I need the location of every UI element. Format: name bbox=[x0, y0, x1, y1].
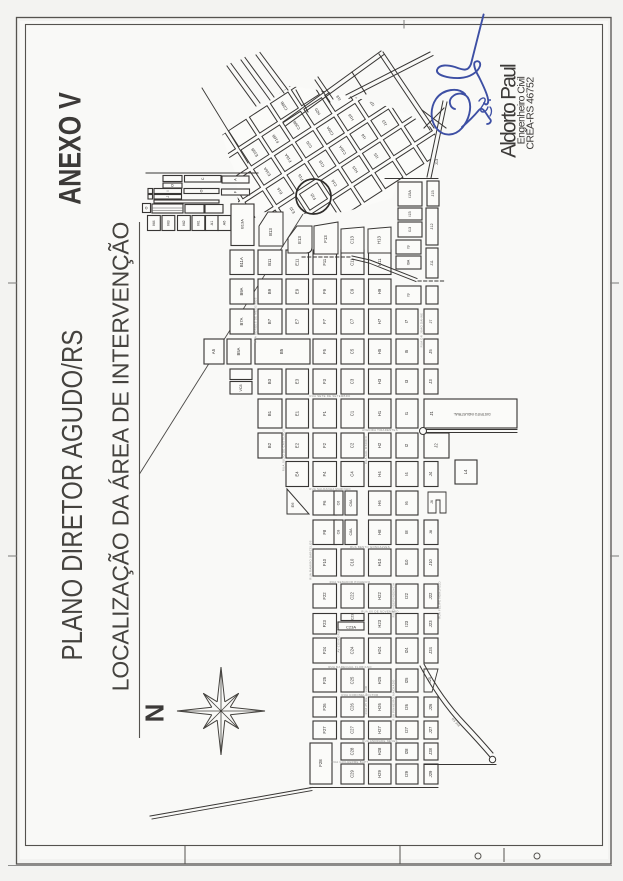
svg-text:H13: H13 bbox=[377, 235, 382, 243]
svg-text:RUA SALDANHA MARINHO: RUA SALDANHA MARINHO bbox=[309, 487, 351, 491]
svg-text:J11: J11 bbox=[430, 260, 434, 266]
svg-text:H23: H23 bbox=[377, 619, 382, 627]
svg-text:RUA BORGES DE MEDEIROS: RUA BORGES DE MEDEIROS bbox=[254, 297, 258, 342]
svg-text:I25: I25 bbox=[404, 677, 409, 683]
svg-text:H6: H6 bbox=[377, 500, 382, 506]
svg-text:VC8: VC8 bbox=[239, 385, 243, 392]
svg-text:RUA GAL OSORIO: RUA GAL OSORIO bbox=[364, 435, 368, 464]
svg-text:M2: M2 bbox=[182, 220, 186, 225]
svg-text:J12: J12 bbox=[430, 223, 434, 229]
svg-text:I15A: I15A bbox=[408, 190, 412, 198]
svg-text:RUA GUILHERME BAPT: RUA GUILHERME BAPT bbox=[332, 760, 369, 764]
svg-text:DISTRITO INDUSTRIAL: DISTRITO INDUSTRIAL bbox=[453, 412, 490, 416]
svg-text:C8A: C8A bbox=[349, 528, 353, 536]
svg-text:C8: C8 bbox=[336, 530, 340, 535]
svg-text:O: O bbox=[144, 206, 148, 209]
svg-text:B9: B9 bbox=[267, 288, 272, 294]
svg-text:RUA ANDRADE NEVES: RUA ANDRADE NEVES bbox=[362, 739, 397, 743]
svg-text:J6: J6 bbox=[430, 500, 434, 504]
svg-text:C29: C29 bbox=[350, 769, 355, 777]
svg-text:RUA SENADOR PINHEIRO: RUA SENADOR PINHEIRO bbox=[330, 580, 371, 584]
svg-text:H8: H8 bbox=[377, 529, 382, 535]
svg-text:M4: M4 bbox=[152, 220, 156, 225]
svg-text:E2: E2 bbox=[294, 442, 299, 448]
svg-text:C23A: C23A bbox=[346, 625, 356, 630]
svg-text:A5: A5 bbox=[211, 348, 216, 354]
svg-text:E7: E7 bbox=[294, 318, 299, 324]
svg-text:C23: C23 bbox=[350, 614, 354, 620]
svg-text:RUA 25 DE JULHO: RUA 25 DE JULHO bbox=[364, 685, 368, 714]
svg-text:C13: C13 bbox=[350, 235, 355, 243]
svg-text:F1: F1 bbox=[322, 410, 327, 416]
svg-text:C: C bbox=[201, 177, 205, 180]
svg-text:E11: E11 bbox=[294, 258, 299, 266]
svg-text:F27: F27 bbox=[322, 726, 327, 734]
svg-text:I23: I23 bbox=[404, 620, 409, 626]
svg-text:AV CONCORDIA: AV CONCORDIA bbox=[337, 628, 341, 653]
svg-text:J27: J27 bbox=[428, 726, 433, 733]
svg-text:J2: J2 bbox=[434, 443, 439, 448]
svg-text:F25: F25 bbox=[322, 676, 327, 684]
svg-text:B11: B11 bbox=[267, 258, 272, 266]
svg-text:E4: E4 bbox=[294, 471, 299, 477]
svg-text:B5A: B5A bbox=[236, 347, 241, 355]
svg-text:J29: J29 bbox=[428, 770, 433, 777]
svg-text:F4: F4 bbox=[322, 471, 327, 477]
svg-text:C10: C10 bbox=[350, 558, 355, 566]
svg-text:J3: J3 bbox=[428, 379, 433, 384]
svg-text:I22: I22 bbox=[404, 592, 409, 598]
svg-text:B7A: B7A bbox=[239, 317, 244, 325]
svg-text:C24: C24 bbox=[350, 646, 355, 654]
svg-text:B3: B3 bbox=[267, 378, 272, 384]
svg-text:I9A: I9A bbox=[407, 259, 411, 265]
svg-text:A6: A6 bbox=[222, 221, 226, 226]
svg-text:J7: J7 bbox=[429, 319, 433, 323]
svg-text:RUA RAMIRO BARCELOS: RUA RAMIRO BARCELOS bbox=[309, 540, 313, 579]
svg-text:I: I bbox=[166, 191, 170, 192]
svg-text:I24: I24 bbox=[404, 647, 409, 653]
svg-text:I28: I28 bbox=[404, 748, 409, 754]
svg-text:F5: F5 bbox=[322, 348, 327, 354]
svg-text:RUA MARECHAL FLORIANO: RUA MARECHAL FLORIANO bbox=[328, 665, 372, 669]
svg-text:C28: C28 bbox=[350, 747, 355, 755]
svg-text:I15: I15 bbox=[408, 211, 412, 216]
svg-text:CREA-RS 46752: CREA-RS 46752 bbox=[525, 77, 537, 150]
svg-text:L4: L4 bbox=[463, 469, 468, 474]
svg-text:F26: F26 bbox=[322, 703, 327, 711]
svg-text:ANEXO V: ANEXO V bbox=[53, 92, 89, 204]
svg-text:B13A: B13A bbox=[240, 219, 245, 229]
svg-text:I27: I27 bbox=[404, 726, 409, 732]
svg-text:E3: E3 bbox=[294, 378, 299, 384]
svg-text:F3: F3 bbox=[322, 378, 327, 384]
svg-text:H3: H3 bbox=[377, 378, 382, 384]
svg-text:RUA XV DE NOVEMBRO: RUA XV DE NOVEMBRO bbox=[361, 610, 399, 614]
svg-text:B7: B7 bbox=[267, 318, 272, 324]
svg-text:F2: F2 bbox=[322, 442, 327, 448]
svg-text:I13: I13 bbox=[408, 227, 412, 232]
svg-text:I26: I26 bbox=[404, 703, 409, 709]
svg-text:J23: J23 bbox=[428, 620, 433, 627]
svg-text:C3: C3 bbox=[350, 378, 355, 384]
svg-text:AVENIDA TIRADENTES: AVENIDA TIRADENTES bbox=[362, 428, 398, 432]
svg-text:E9: E9 bbox=[294, 288, 299, 294]
svg-text:C6A: C6A bbox=[349, 499, 353, 507]
svg-text:H1: H1 bbox=[377, 410, 382, 416]
svg-text:B1: B1 bbox=[267, 410, 272, 416]
svg-text:F6: F6 bbox=[322, 500, 327, 506]
svg-text:H28: H28 bbox=[377, 747, 382, 755]
svg-text:F10: F10 bbox=[322, 558, 327, 566]
svg-text:J26: J26 bbox=[428, 703, 433, 710]
svg-text:J4: J4 bbox=[428, 471, 433, 476]
svg-text:B13: B13 bbox=[268, 228, 273, 236]
svg-text:RUA DR JOAO DAHNE: RUA DR JOAO DAHNE bbox=[420, 313, 424, 348]
svg-text:J1: J1 bbox=[429, 411, 434, 416]
svg-text:E13: E13 bbox=[297, 236, 302, 244]
svg-text:F13: F13 bbox=[323, 235, 328, 243]
svg-text:B11A: B11A bbox=[239, 257, 244, 267]
svg-text:O: O bbox=[199, 189, 203, 192]
svg-text:C1: C1 bbox=[350, 410, 355, 416]
svg-text:RUA BENTO GONCALVES: RUA BENTO GONCALVES bbox=[350, 545, 390, 549]
svg-text:J22: J22 bbox=[428, 592, 433, 599]
svg-text:C4: C4 bbox=[350, 471, 355, 477]
svg-text:J15: J15 bbox=[431, 190, 435, 196]
svg-text:J: J bbox=[166, 196, 170, 198]
svg-text:J24: J24 bbox=[428, 646, 433, 653]
svg-text:F24: F24 bbox=[322, 646, 327, 654]
svg-text:RUA PINHEIRO MACHADO: RUA PINHEIRO MACHADO bbox=[392, 679, 396, 721]
svg-text:C7: C7 bbox=[350, 318, 355, 324]
svg-text:H9: H9 bbox=[377, 288, 382, 294]
svg-text:RUA JULIO DE CASTILHOS: RUA JULIO DE CASTILHOS bbox=[282, 429, 286, 471]
svg-text:O: O bbox=[170, 184, 174, 187]
svg-text:I9: I9 bbox=[407, 293, 411, 296]
svg-text:C5: C5 bbox=[350, 348, 355, 354]
svg-text:H26: H26 bbox=[377, 702, 382, 710]
svg-text:C2: C2 bbox=[350, 442, 355, 448]
svg-text:E1: E1 bbox=[294, 410, 299, 416]
svg-text:H10: H10 bbox=[377, 558, 382, 566]
svg-text:H27: H27 bbox=[377, 725, 382, 733]
svg-text:LOCALIZAÇÃO DA ÁREA DE INTERVE: LOCALIZAÇÃO DA ÁREA DE INTERVENÇÃO bbox=[108, 222, 134, 692]
svg-text:I9: I9 bbox=[407, 245, 411, 248]
svg-text:I29: I29 bbox=[404, 770, 409, 776]
svg-text:J10: J10 bbox=[428, 558, 433, 565]
svg-text:N: N bbox=[140, 704, 170, 723]
svg-text:M1: M1 bbox=[196, 220, 200, 225]
svg-text:B2: B2 bbox=[267, 442, 272, 448]
svg-text:H5: H5 bbox=[377, 348, 382, 354]
svg-text:H7: H7 bbox=[377, 318, 382, 324]
svg-text:C27: C27 bbox=[350, 725, 355, 733]
svg-text:H2: H2 bbox=[377, 442, 382, 448]
svg-text:H29: H29 bbox=[377, 769, 382, 777]
svg-text:F28: F28 bbox=[318, 759, 323, 767]
svg-text:H22: H22 bbox=[377, 591, 382, 599]
svg-text:PLANO DIRETOR AGUDO/RS: PLANO DIRETOR AGUDO/RS bbox=[56, 329, 89, 660]
svg-text:RUA SETE DE SETEMBRO: RUA SETE DE SETEMBRO bbox=[310, 394, 351, 398]
svg-text:A1: A1 bbox=[210, 221, 214, 226]
svg-text:J13: J13 bbox=[435, 159, 439, 165]
svg-text:C9: C9 bbox=[350, 288, 355, 294]
svg-text:F23: F23 bbox=[322, 620, 327, 628]
svg-text:J5: J5 bbox=[428, 349, 433, 354]
svg-text:M3: M3 bbox=[166, 220, 170, 225]
svg-text:H24: H24 bbox=[377, 646, 382, 654]
svg-text:H25: H25 bbox=[377, 676, 382, 684]
svg-text:RUA FELIPE NOHLFELD: RUA FELIPE NOHLFELD bbox=[438, 581, 442, 619]
svg-text:F11: F11 bbox=[322, 258, 327, 266]
svg-text:F22: F22 bbox=[322, 592, 327, 600]
svg-text:B5: B5 bbox=[279, 348, 284, 354]
svg-text:J8: J8 bbox=[429, 530, 433, 534]
svg-text:H4: H4 bbox=[377, 471, 382, 477]
svg-text:E6: E6 bbox=[290, 502, 295, 508]
svg-text:F9: F9 bbox=[322, 288, 327, 294]
svg-text:C26: C26 bbox=[350, 702, 355, 710]
svg-text:RUA CORONEL VICTOR: RUA CORONEL VICTOR bbox=[342, 693, 379, 697]
svg-text:C22: C22 bbox=[350, 591, 355, 599]
svg-text:C25: C25 bbox=[350, 676, 355, 684]
svg-text:F8: F8 bbox=[322, 529, 327, 535]
svg-text:I10: I10 bbox=[404, 559, 409, 565]
svg-text:C6: C6 bbox=[336, 501, 340, 506]
svg-text:B9A: B9A bbox=[239, 287, 244, 295]
svg-text:F7: F7 bbox=[322, 318, 327, 324]
svg-text:J28: J28 bbox=[428, 747, 433, 754]
